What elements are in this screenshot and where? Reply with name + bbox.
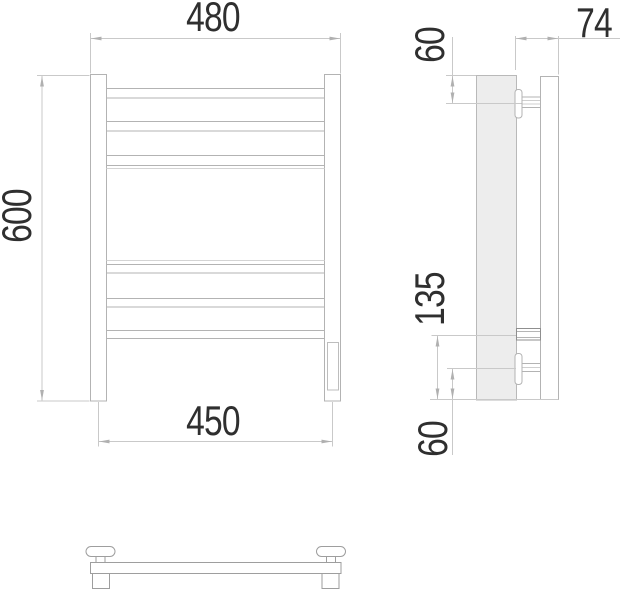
lower-connection-fitting (517, 329, 541, 341)
top-view-right-foot (322, 574, 339, 589)
upper-bracket-arm (522, 97, 541, 108)
top-view-left-foot (93, 574, 110, 589)
top-view-left-flange (86, 547, 115, 557)
dimension-label-overall-width: 480 (165, 0, 261, 34)
rail-bar (107, 331, 325, 339)
dimension-label-bottom-offset: 60 (416, 391, 450, 487)
dimension-label-top-bracket-offset: 60 (413, 0, 447, 93)
rail-bar (107, 156, 325, 166)
dimension-label-depth: 74 (546, 6, 622, 40)
top-view-right-flange (317, 547, 346, 557)
side-view (477, 76, 559, 401)
rail-bar (107, 89, 325, 99)
top-view (86, 547, 346, 589)
left-post (91, 75, 107, 402)
heating-element-box (328, 343, 339, 391)
dimension-label-overall-height: 600 (0, 168, 34, 264)
lower-bracket-flange (515, 354, 522, 385)
technical-drawing-canvas: 480 600 450 74 60 135 60 (0, 0, 622, 600)
dim-overall-height (37, 76, 90, 402)
front-view (91, 75, 341, 402)
wall-mount-plate (541, 77, 559, 400)
dimension-label-rail-center-width: 450 (165, 404, 261, 438)
dimension-label-lower-section-height: 135 (413, 251, 447, 347)
rail-bar (107, 122, 325, 132)
side-post-tube (477, 76, 517, 401)
top-view-rail-tube (91, 563, 342, 574)
drawing-geometry (0, 0, 622, 600)
rail-bar (107, 299, 325, 308)
rail-bar (107, 265, 325, 274)
